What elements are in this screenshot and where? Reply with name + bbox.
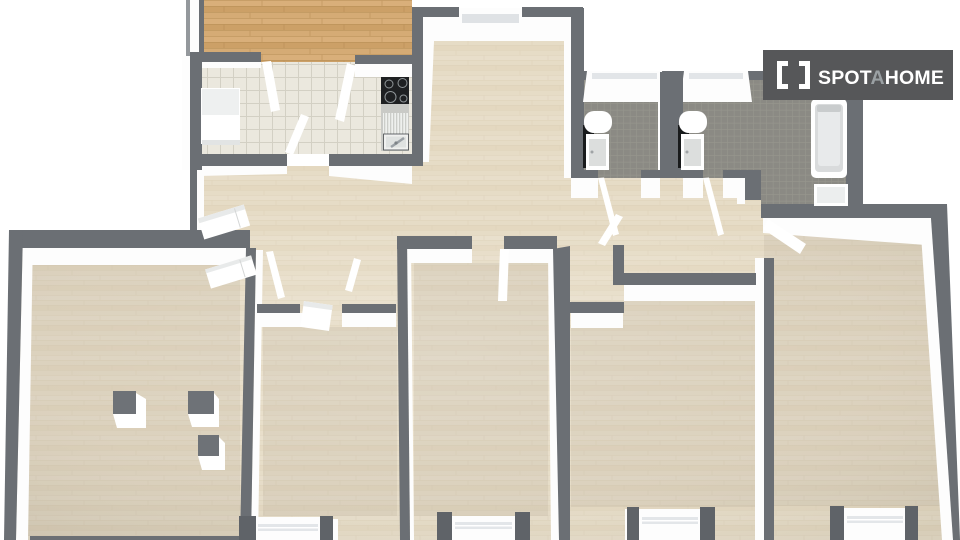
svg-text:SPOTAHOME: SPOTAHOME [818,67,944,89]
